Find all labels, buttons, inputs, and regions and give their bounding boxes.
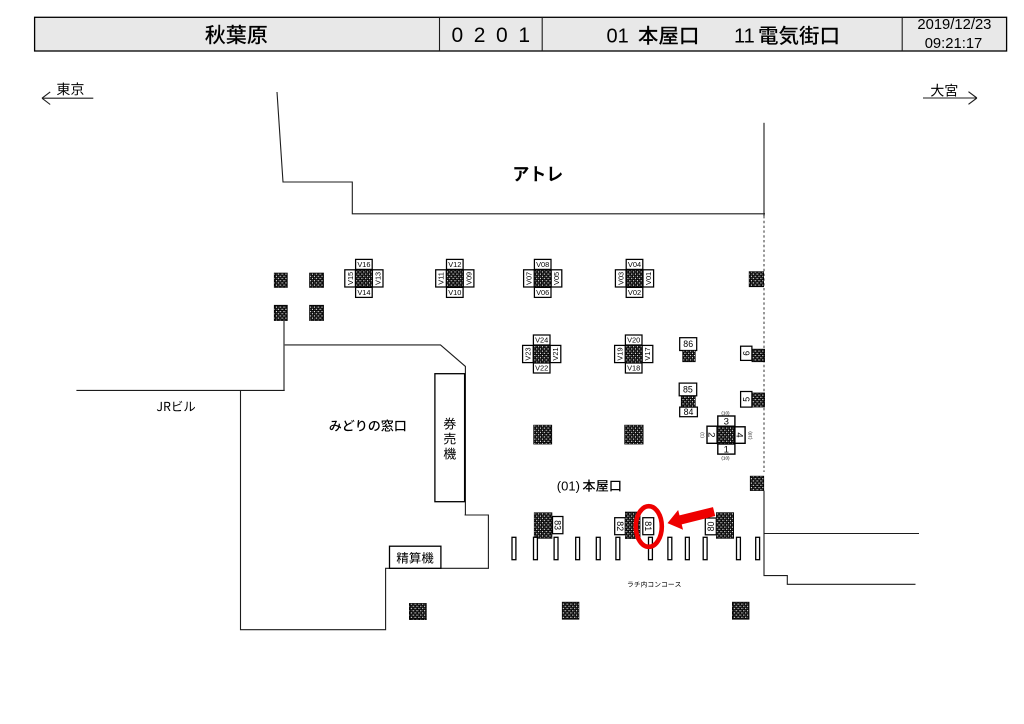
svg-text:V20: V20 [627,336,640,345]
svg-text:V11: V11 [437,272,446,285]
svg-text:4: 4 [734,432,745,438]
svg-text:11: 11 [734,26,755,48]
svg-text:V06: V06 [536,288,549,297]
svg-text:(01): (01) [557,478,580,493]
svg-text:V02: V02 [628,288,641,297]
svg-text:V22: V22 [535,364,548,373]
svg-text:0201: 0201 [452,24,541,47]
svg-text:(10): (10) [721,456,730,461]
svg-text:V04: V04 [628,260,641,269]
svg-text:V17: V17 [643,347,652,360]
svg-text:3: 3 [724,416,729,427]
svg-text:V07: V07 [525,272,534,285]
svg-text:V19: V19 [616,347,625,360]
svg-text:V12: V12 [448,260,461,269]
svg-text:(10): (10) [747,431,752,440]
svg-text:2: 2 [706,432,717,437]
svg-text:V16: V16 [357,260,370,269]
svg-text:81: 81 [643,521,653,531]
svg-text:01: 01 [607,26,629,48]
svg-text:1: 1 [724,444,729,455]
svg-text:V23: V23 [524,347,533,360]
svg-text:V21: V21 [551,347,560,360]
svg-text:6: 6 [741,351,751,356]
svg-text:V24: V24 [535,336,548,345]
svg-text:(1): (1) [700,432,705,438]
svg-text:83: 83 [553,520,563,530]
svg-text:85: 85 [683,385,693,395]
svg-text:V15: V15 [346,272,355,285]
svg-text:V09: V09 [464,272,473,285]
svg-text:V08: V08 [536,260,549,269]
svg-text:V01: V01 [644,272,653,285]
svg-text:09:21:17: 09:21:17 [925,36,983,52]
svg-text:V05: V05 [552,272,561,285]
svg-text:80: 80 [706,521,716,531]
svg-text:82: 82 [615,521,625,531]
svg-text:V13: V13 [373,272,382,285]
svg-text:86: 86 [683,339,693,349]
svg-text:2019/12/23: 2019/12/23 [917,17,991,33]
svg-text:V03: V03 [616,272,625,285]
svg-text:V14: V14 [357,288,370,297]
svg-text:V18: V18 [627,364,640,373]
svg-text:84: 84 [684,407,694,417]
svg-text:(10): (10) [721,410,730,415]
svg-text:5: 5 [741,397,751,402]
svg-text:V10: V10 [448,288,461,297]
